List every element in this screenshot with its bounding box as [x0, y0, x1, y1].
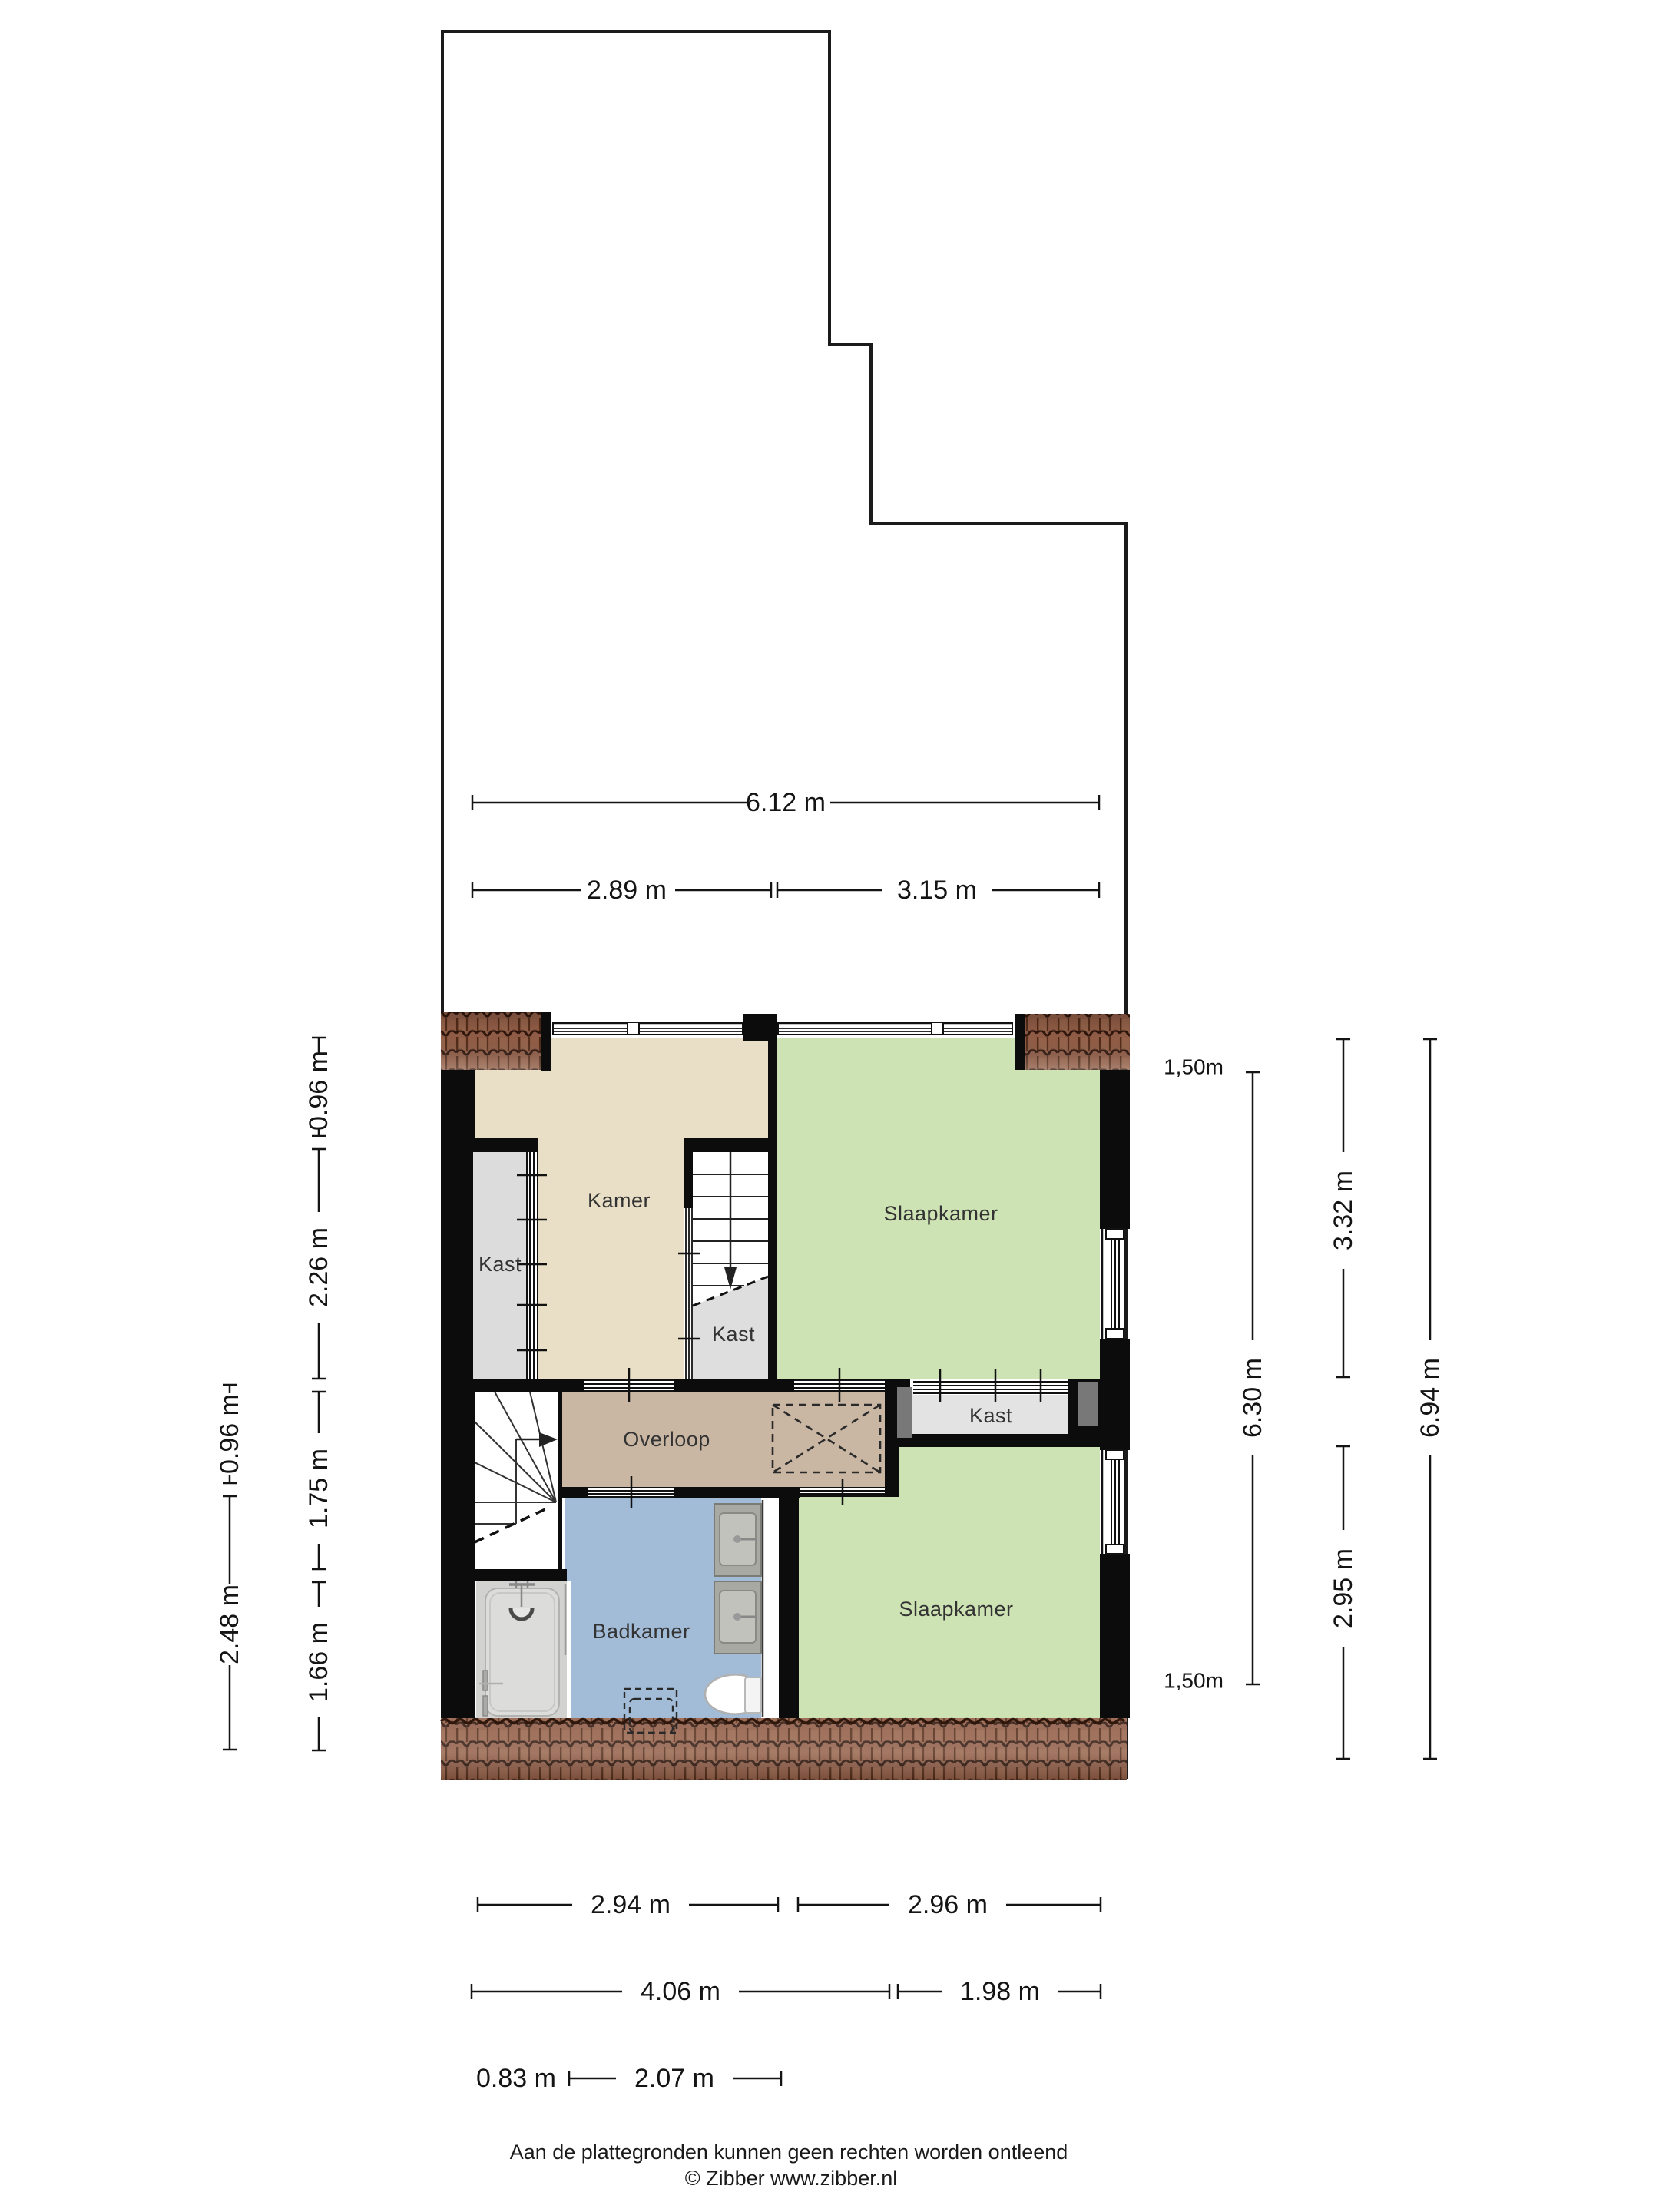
svg-text:Kamer: Kamer [588, 1189, 651, 1212]
svg-text:2.95 m: 2.95 m [1329, 1548, 1358, 1628]
svg-text:Kast: Kast [969, 1404, 1012, 1427]
svg-text:2.94 m: 2.94 m [591, 1890, 671, 1919]
svg-text:Aan de plattegronden kunnen ge: Aan de plattegronden kunnen geen rechten… [510, 2141, 1068, 2164]
svg-text:Overloop: Overloop [623, 1428, 710, 1451]
svg-text:Slaapkamer: Slaapkamer [883, 1202, 998, 1225]
svg-text:Kast: Kast [712, 1323, 755, 1346]
svg-text:Kast: Kast [478, 1253, 522, 1276]
svg-text:Badkamer: Badkamer [592, 1620, 690, 1643]
svg-text:0.96 m: 0.96 m [304, 1051, 333, 1131]
svg-text:1,50m: 1,50m [1164, 1669, 1224, 1693]
svg-text:2.89 m: 2.89 m [587, 876, 667, 905]
svg-text:6.30 m: 6.30 m [1238, 1358, 1267, 1438]
svg-text:1,50m: 1,50m [1164, 1055, 1224, 1079]
svg-text:0.83 m: 0.83 m [476, 2064, 556, 2093]
svg-text:6.12 m: 6.12 m [746, 788, 826, 817]
svg-text:2.07 m: 2.07 m [634, 2064, 714, 2093]
svg-text:4.06 m: 4.06 m [641, 1977, 720, 2006]
svg-text:0.96 m: 0.96 m [215, 1394, 244, 1474]
svg-text:Slaapkamer: Slaapkamer [899, 1598, 1013, 1621]
svg-text:3.32 m: 3.32 m [1329, 1171, 1358, 1250]
svg-text:1.98 m: 1.98 m [960, 1977, 1040, 2006]
svg-text:6.94 m: 6.94 m [1416, 1358, 1445, 1438]
svg-text:3.15 m: 3.15 m [897, 876, 977, 905]
svg-text:2.96 m: 2.96 m [908, 1890, 988, 1919]
svg-text:1.75 m: 1.75 m [304, 1449, 333, 1528]
svg-text:© Zibber www.zibber.nl: © Zibber www.zibber.nl [685, 2167, 898, 2190]
svg-text:2.48 m: 2.48 m [215, 1584, 244, 1664]
svg-text:2.26 m: 2.26 m [304, 1227, 333, 1307]
svg-text:1.66 m: 1.66 m [304, 1622, 333, 1702]
